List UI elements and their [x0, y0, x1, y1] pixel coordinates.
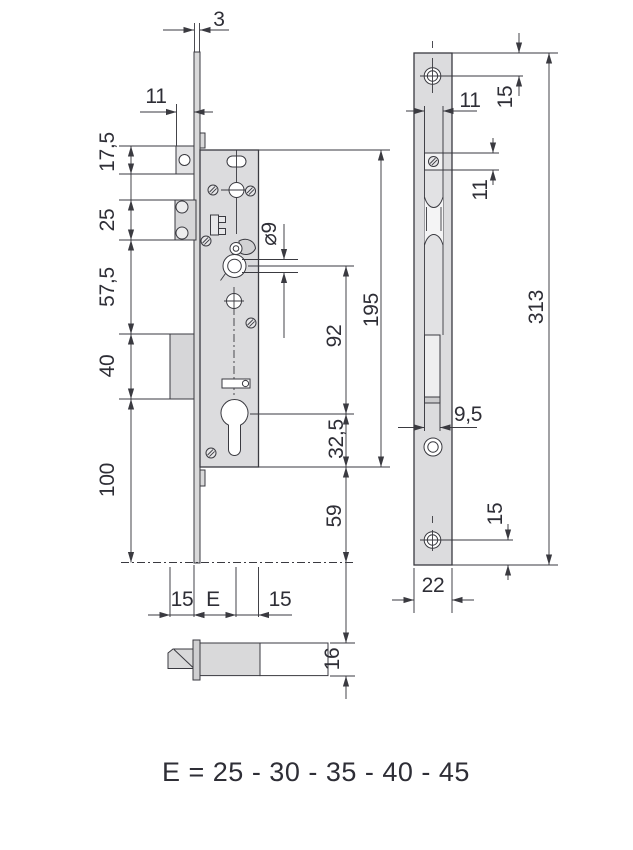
dim-chain-100: 100	[96, 463, 119, 497]
lock-dimension-drawing: 3 11 17,5 25 57,5 40 100 ⌀9 92 32,5 59	[0, 0, 633, 850]
side-view	[170, 23, 259, 563]
latch-head	[168, 649, 193, 669]
dim-follower-hole-dia: ⌀9	[258, 222, 281, 246]
backset-formula: E = 25 - 30 - 35 - 40 - 45	[162, 757, 470, 787]
latch-tail	[260, 643, 328, 676]
dim-plate-thickness: 3	[213, 8, 224, 31]
aux-latch	[176, 146, 194, 174]
dim-front-offset: 11	[145, 85, 166, 108]
dim-latch-height: 16	[321, 648, 344, 671]
dim-follower-to-cylinder: 92	[323, 325, 346, 348]
latch-flange	[193, 640, 200, 680]
roller-bolt	[175, 200, 196, 240]
dim-case-height: 195	[360, 293, 383, 327]
dim-bolt-slot-width: 9,5	[454, 403, 482, 426]
front-view	[414, 41, 523, 565]
dim-top-hole-offset: 15	[494, 86, 517, 109]
latch-detail: 16	[168, 563, 355, 700]
dim-bottom-hole-offset: 15	[484, 503, 507, 526]
dim-chain-40: 40	[96, 355, 119, 378]
dim-cylinder-to-case-end: 32,5	[325, 419, 348, 459]
dim-plate-width: 22	[422, 574, 445, 597]
dim-plate-length: 313	[525, 290, 548, 324]
dim-slot-width: 11	[459, 89, 480, 112]
dim-chain-17-5: 17,5	[96, 132, 119, 172]
dim-chain-25: 25	[96, 209, 119, 232]
dim-chain-57-5: 57,5	[96, 267, 119, 307]
lever-slot	[222, 379, 250, 388]
deadbolt-slot	[425, 335, 441, 403]
follower-hole	[228, 259, 242, 273]
dim-bolt-projection: 15	[171, 588, 194, 611]
dim-case-to-plate-end: 59	[323, 505, 346, 528]
faceplate-edge	[194, 52, 200, 563]
technical-drawing-page: 3 11 17,5 25 57,5 40 100 ⌀9 92 32,5 59	[0, 0, 633, 850]
latch-body	[200, 643, 260, 676]
dim-screw-slot-height: 11	[469, 179, 492, 200]
dim-cylinder-to-back: 15	[269, 588, 292, 611]
deadbolt	[170, 334, 194, 399]
dim-backset-e: E	[206, 588, 220, 611]
